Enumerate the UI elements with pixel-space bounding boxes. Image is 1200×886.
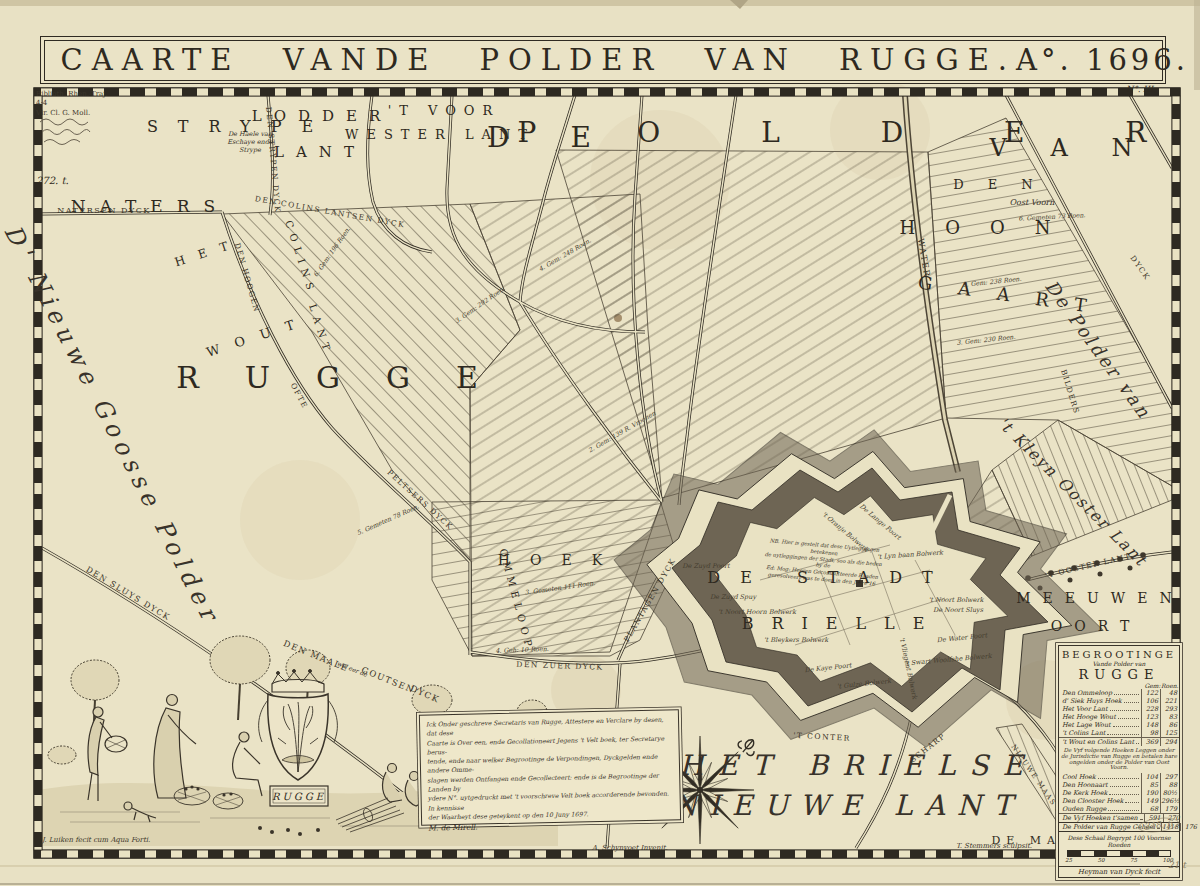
table-row: Ouden Rugge68179 (1059, 805, 1179, 813)
table-row: De Kerk Hoek19080½ (1059, 789, 1179, 797)
table-note: De Vyf volgende Hoeken Leggen onderde Ju… (1059, 746, 1179, 773)
scale-tick: 25 (1065, 857, 1072, 864)
table-row: Den Clooster Hoek149296½ (1059, 797, 1179, 805)
table-row: d' Siek Huys Hoek106221 (1059, 697, 1179, 705)
map-title-year: A°. 1696. (1016, 43, 1189, 77)
begrootinge-table: BEGROOTINGE Vande Polder van RUGGE Gem: … (1058, 645, 1180, 878)
column-header-gem: Gem: (1144, 682, 1161, 689)
engraver-signature: T. Stemmers sculpsit. (956, 842, 1032, 850)
library-stamp: Biblioth. Rhen.-Traj.4;4Vir. Cl. G. Moll… (36, 90, 140, 188)
designer-signature: A. Schynvoet Invenit. (592, 844, 668, 852)
table-polder-name: RUGGE (1059, 667, 1179, 682)
table-subtitle: Vande Polder van (1059, 660, 1179, 667)
scale-tick: 75 (1130, 857, 1137, 864)
table-row: 't Colins Lant98125 (1059, 729, 1179, 737)
table-title: BEGROOTINGE (1059, 649, 1179, 660)
attestation-cartouche: Ick Onder geschreve Secretaris van Rugge… (419, 709, 681, 826)
sheet-number: N°. III. (1126, 84, 1156, 94)
scale-tick: 50 (1098, 857, 1105, 864)
stamp-line: Biblioth. Rhen.-Traj. (36, 90, 140, 99)
etcher-signature: J. Luiken fecit cum Aqua Forti. (42, 836, 150, 844)
map-scan: { "meta": { "sheet_no": "N°. III." }, "t… (0, 0, 1200, 886)
table-row: Het Voor Lant228293 (1059, 705, 1179, 713)
table-row: Den Ommeloop12248 (1059, 689, 1179, 697)
table-row: Het Lage Wout14886 (1059, 721, 1179, 729)
stamp-line: 4;4 (36, 99, 140, 108)
column-header-roen: Roen. (1161, 682, 1178, 689)
scale-label: Dese Schaal Begrypt 100 Voornse Roeden (1063, 834, 1175, 848)
scale-bar-section: Dese Schaal Begrypt 100 Voornse Roeden 2… (1059, 831, 1179, 866)
table-row: Den Hoonaart8588 (1059, 781, 1179, 789)
table-row: 't Wout en Colins Lant369294 (1059, 737, 1179, 746)
attestation-signature: M. de Mirell. (428, 823, 478, 833)
scale-bar (1067, 850, 1171, 857)
pencil-note: 21 t (1168, 860, 1186, 870)
surveyor-credit: Heyman van Dyck fecit (1059, 866, 1179, 877)
accession-number: 272. t. (36, 174, 140, 188)
title-banner: CAARTE VANDE POLDER VAN RUGGE. A°. 1696. (40, 36, 1166, 84)
table-row: Cool Hoek104297 (1059, 773, 1179, 781)
map-title: CAARTE VANDE POLDER VAN RUGGE. (61, 43, 1017, 77)
table-row: Het Hooge Wout12383 (1059, 713, 1179, 721)
stamp-line: Vir. Cl. G. Moll. (36, 109, 140, 118)
